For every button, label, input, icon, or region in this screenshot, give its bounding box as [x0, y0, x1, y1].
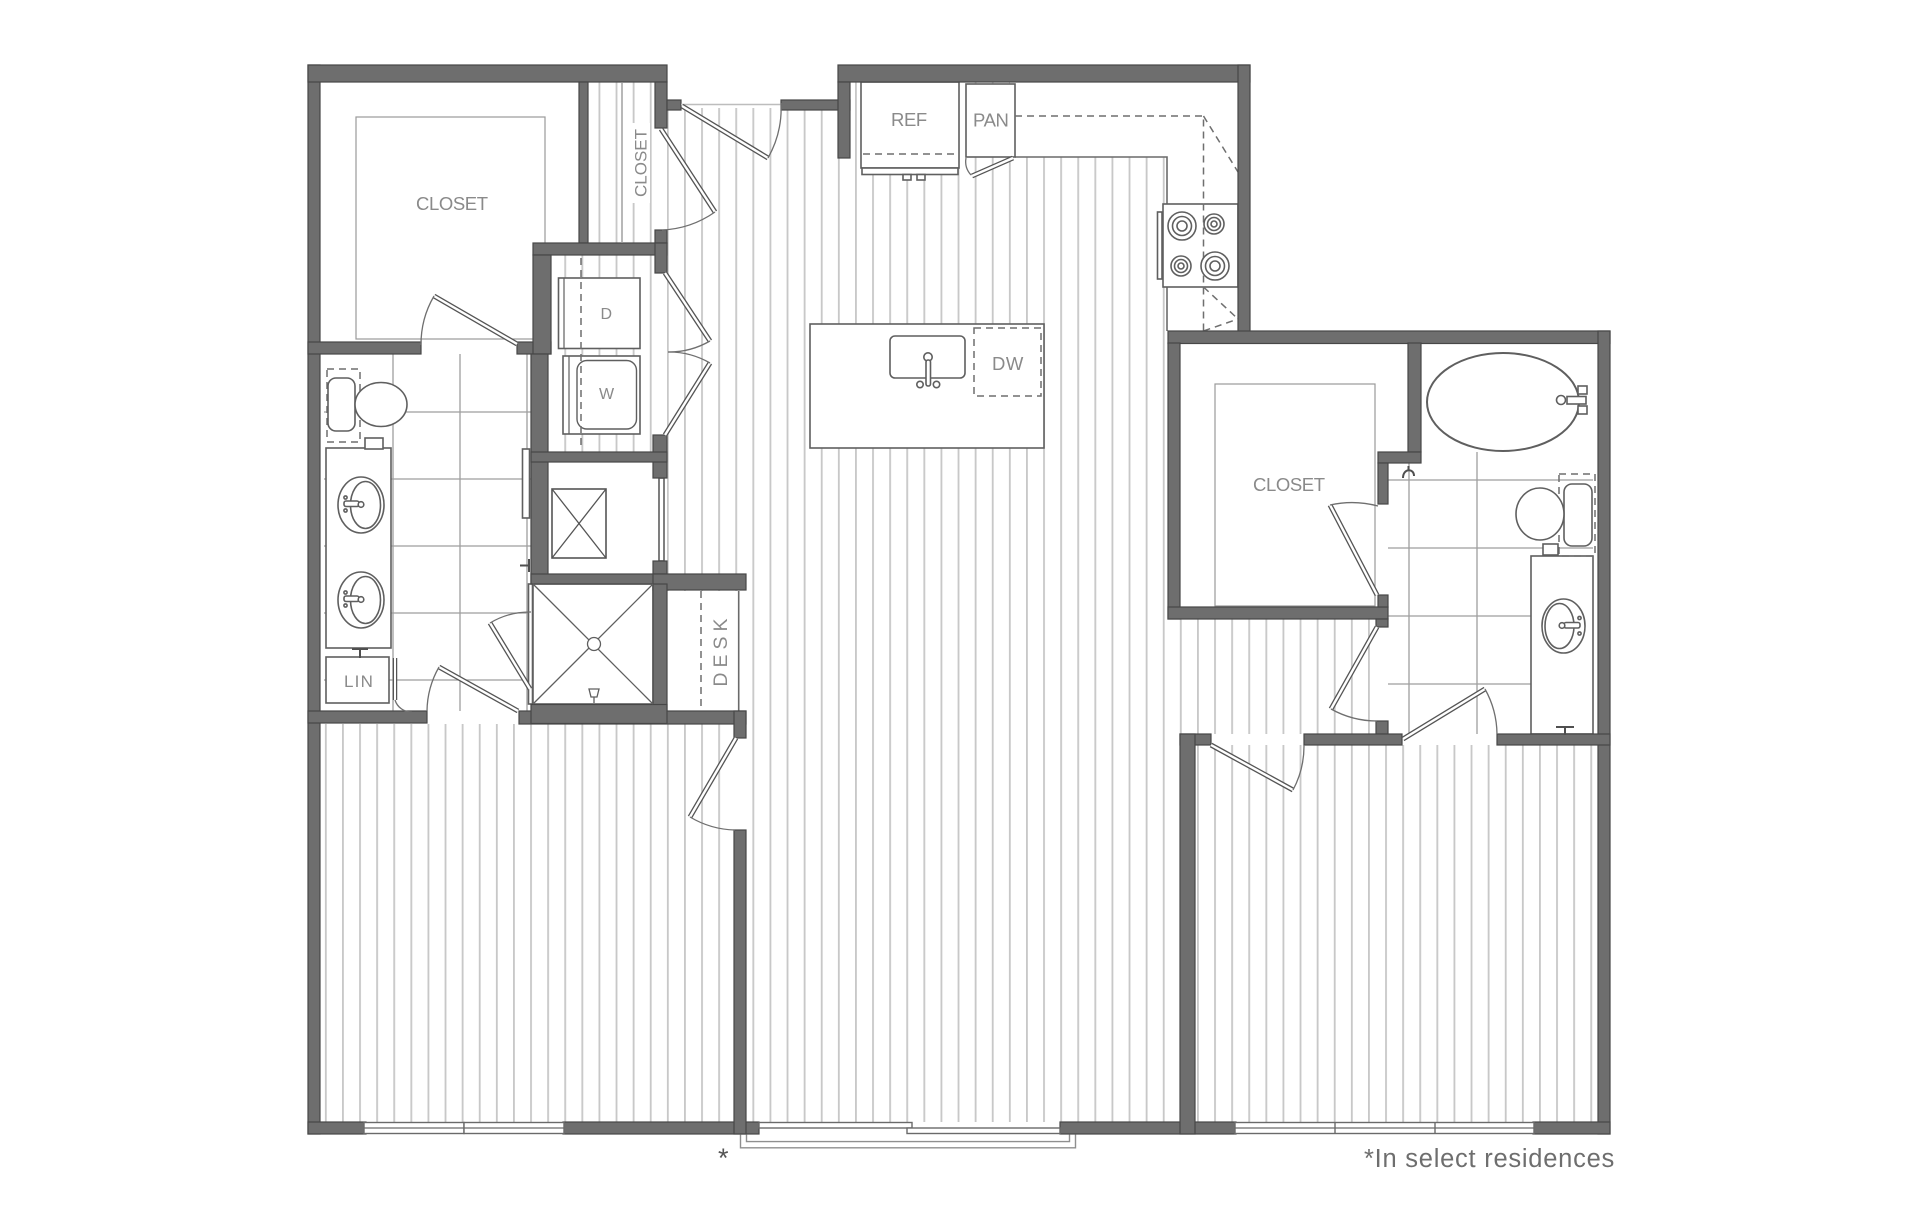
svg-text:DW: DW — [992, 353, 1024, 374]
svg-text:PAN: PAN — [973, 110, 1008, 131]
svg-text:*: * — [718, 1143, 729, 1173]
svg-text:LIN: LIN — [344, 672, 374, 691]
svg-text:CLOSET: CLOSET — [632, 129, 651, 197]
svg-text:D: D — [601, 306, 612, 323]
svg-text:*In select residences: *In select residences — [1364, 1145, 1615, 1173]
svg-text:CLOSET: CLOSET — [416, 193, 488, 214]
svg-text:REF: REF — [891, 109, 927, 130]
svg-text:W: W — [599, 386, 615, 403]
svg-text:CLOSET: CLOSET — [1253, 474, 1325, 495]
svg-text:DESK: DESK — [710, 613, 732, 686]
